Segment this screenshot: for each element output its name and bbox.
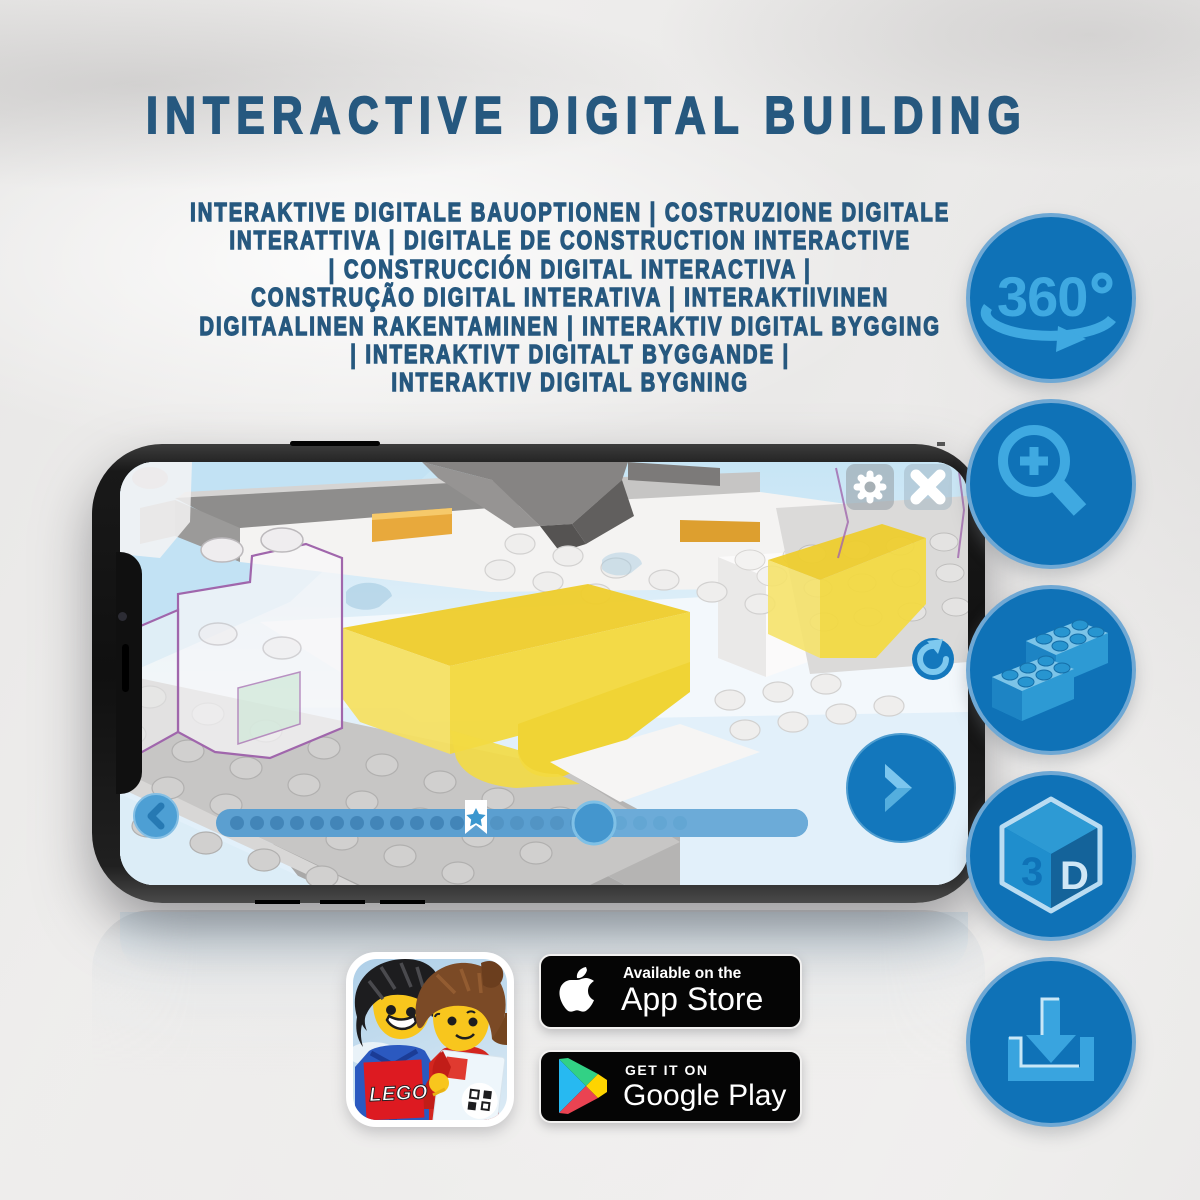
svg-text:3: 3 <box>1021 850 1043 894</box>
svg-text:D: D <box>1060 854 1089 898</box>
svg-text:Google Play: Google Play <box>623 1079 786 1112</box>
svg-text:Available on the: Available on the <box>623 965 742 982</box>
svg-text:360: 360 <box>997 265 1087 328</box>
svg-text:App Store: App Store <box>621 981 763 1017</box>
svg-text:LEGO: LEGO <box>369 1081 429 1106</box>
svg-text:GET IT ON: GET IT ON <box>625 1062 709 1078</box>
